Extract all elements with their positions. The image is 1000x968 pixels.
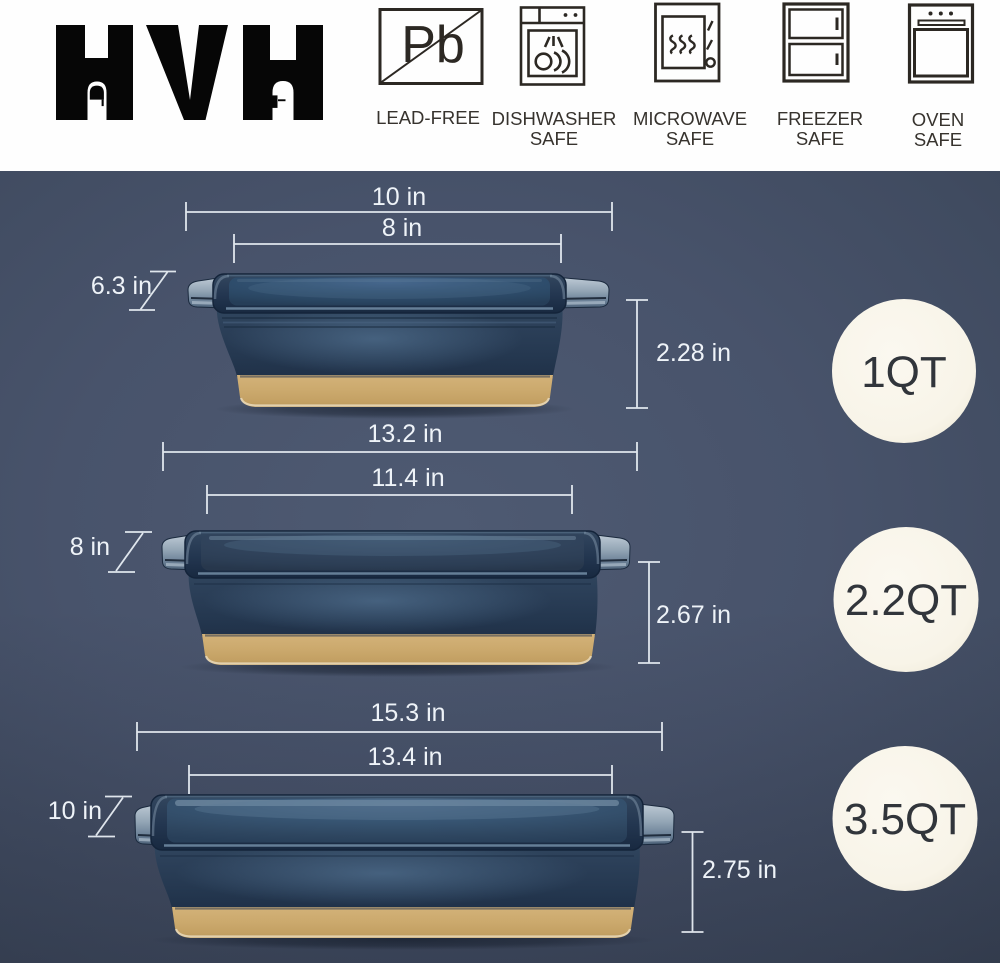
svg-text:2.28 in: 2.28 in (656, 339, 731, 367)
svg-text:2.2QT: 2.2QT (845, 576, 967, 625)
svg-text:MICROWAVE: MICROWAVE (633, 108, 747, 129)
svg-text:SAFE: SAFE (666, 128, 714, 149)
svg-text:2.67 in: 2.67 in (656, 601, 731, 629)
svg-text:LEAD-FREE: LEAD-FREE (376, 107, 480, 128)
svg-text:SAFE: SAFE (530, 128, 578, 149)
svg-text:1QT: 1QT (861, 348, 947, 397)
svg-text:DISHWASHER: DISHWASHER (492, 108, 617, 129)
svg-text:10 in: 10 in (372, 183, 426, 211)
svg-text:2.75 in: 2.75 in (702, 856, 777, 884)
svg-text:3.5QT: 3.5QT (844, 795, 966, 844)
svg-text:8 in: 8 in (70, 533, 110, 561)
svg-text:10 in: 10 in (48, 797, 102, 825)
svg-text:SAFE: SAFE (914, 129, 962, 150)
svg-text:Pb: Pb (401, 16, 465, 74)
svg-text:13.4 in: 13.4 in (367, 743, 442, 771)
svg-text:8 in: 8 in (382, 214, 422, 242)
svg-text:OVEN: OVEN (912, 109, 964, 130)
svg-text:13.2 in: 13.2 in (367, 420, 442, 448)
svg-text:SAFE: SAFE (796, 128, 844, 149)
svg-text:11.4 in: 11.4 in (371, 464, 444, 492)
svg-text:FREEZER: FREEZER (777, 108, 863, 129)
svg-text:6.3 in: 6.3 in (91, 272, 152, 300)
svg-text:15.3 in: 15.3 in (370, 699, 445, 727)
